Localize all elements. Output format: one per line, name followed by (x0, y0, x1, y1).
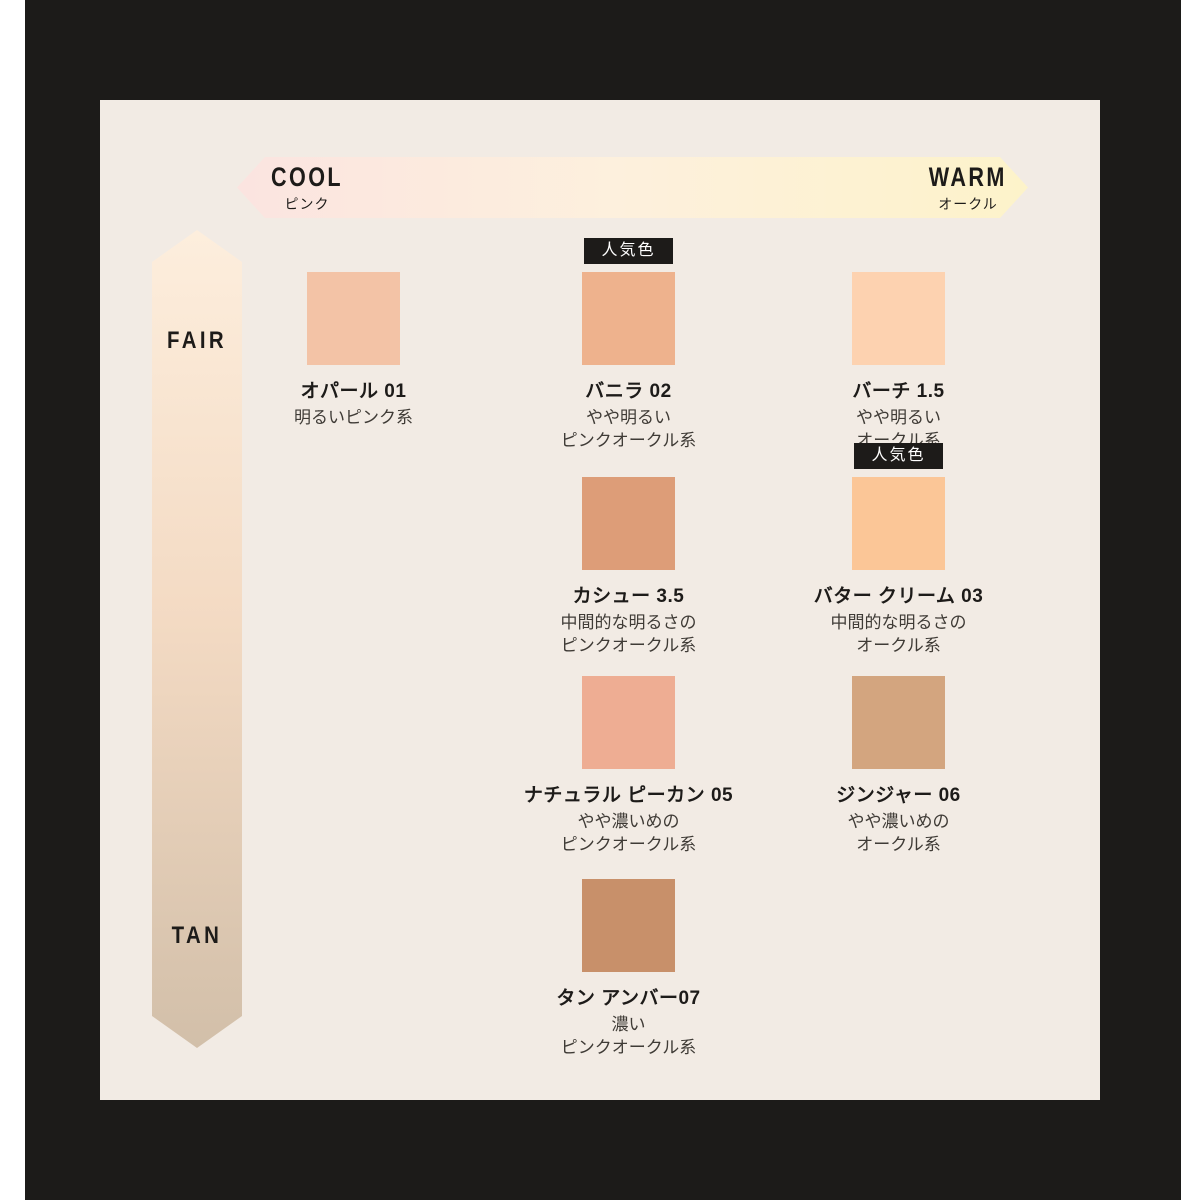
shade-item: 人気色 バニラ 02 やや明るいピンクオークル系 (489, 238, 769, 453)
outer-frame: COOL ピンク WARM オークル FAIR TAN 人気色 オパール 01 … (25, 0, 1181, 1200)
shade-description-line: やや明るい (561, 406, 697, 429)
shade-description-line: 中間的な明るさの (561, 611, 697, 634)
shade-swatch (582, 477, 675, 570)
shade-name: ナチュラル ピーカン 05 (524, 780, 733, 807)
shade-item: 人気色 カシュー 3.5 中間的な明るさのピンクオークル系 (489, 443, 769, 658)
shade-name: ジンジャー 06 (836, 780, 960, 807)
shade-item: 人気色 オパール 01 明るいピンク系 (214, 238, 494, 429)
shade-item: 人気色 タン アンバー07 濃いピンクオークル系 (489, 845, 769, 1060)
pink-sublabel: ピンク (285, 194, 330, 214)
shade-name: バーチ 1.5 (852, 376, 944, 403)
shade-name: タン アンバー07 (556, 983, 700, 1010)
shade-description: 明るいピンク系 (294, 406, 413, 429)
shade-description-line: ピンクオークル系 (561, 1036, 697, 1059)
shade-description-line: やや明るい (856, 406, 941, 429)
shade-description-line: オークル系 (848, 833, 950, 856)
shade-description-line: 明るいピンク系 (294, 406, 413, 429)
shade-swatch (307, 272, 400, 365)
shade-name: バター クリーム 03 (814, 581, 984, 608)
cool-label: COOL (271, 162, 343, 193)
shade-item: 人気色 バター クリーム 03 中間的な明るさのオークル系 (759, 443, 1039, 658)
warm-label: WARM (929, 162, 1007, 193)
shade-description-line: やや濃いめの (848, 810, 950, 833)
shade-name: バニラ 02 (585, 376, 671, 403)
shade-description-line: やや濃いめの (561, 810, 697, 833)
shade-swatch (852, 272, 945, 365)
shade-description-line: 中間的な明るさの (831, 611, 967, 634)
shade-name: オパール 01 (301, 376, 407, 403)
shade-item: 人気色 ジンジャー 06 やや濃いめのオークル系 (759, 642, 1039, 857)
shade-item: 人気色 ナチュラル ピーカン 05 やや濃いめのピンクオークル系 (489, 642, 769, 857)
popular-badge: 人気色 (854, 443, 942, 469)
shade-description: 濃いピンクオークル系 (561, 1013, 697, 1060)
shade-item: 人気色 バーチ 1.5 やや明るいオークル系 (759, 238, 1039, 453)
tan-label: TAN (159, 922, 236, 950)
shade-swatch (582, 676, 675, 769)
shade-swatch (582, 879, 675, 972)
undertone-axis-arrow: COOL ピンク WARM オークル (237, 157, 1028, 218)
warm-axis-label-group: WARM オークル (898, 157, 1038, 218)
shade-name: カシュー 3.5 (573, 581, 685, 608)
shade-description-line: 濃い (561, 1013, 697, 1036)
shade-swatch (852, 676, 945, 769)
shade-swatch (582, 272, 675, 365)
shade-chart-panel: COOL ピンク WARM オークル FAIR TAN 人気色 オパール 01 … (100, 100, 1100, 1100)
ochre-sublabel: オークル (938, 194, 998, 214)
cool-axis-label-group: COOL ピンク (237, 157, 377, 218)
popular-badge: 人気色 (584, 238, 672, 264)
shade-swatch (852, 477, 945, 570)
shade-description: やや濃いめのオークル系 (848, 810, 950, 857)
